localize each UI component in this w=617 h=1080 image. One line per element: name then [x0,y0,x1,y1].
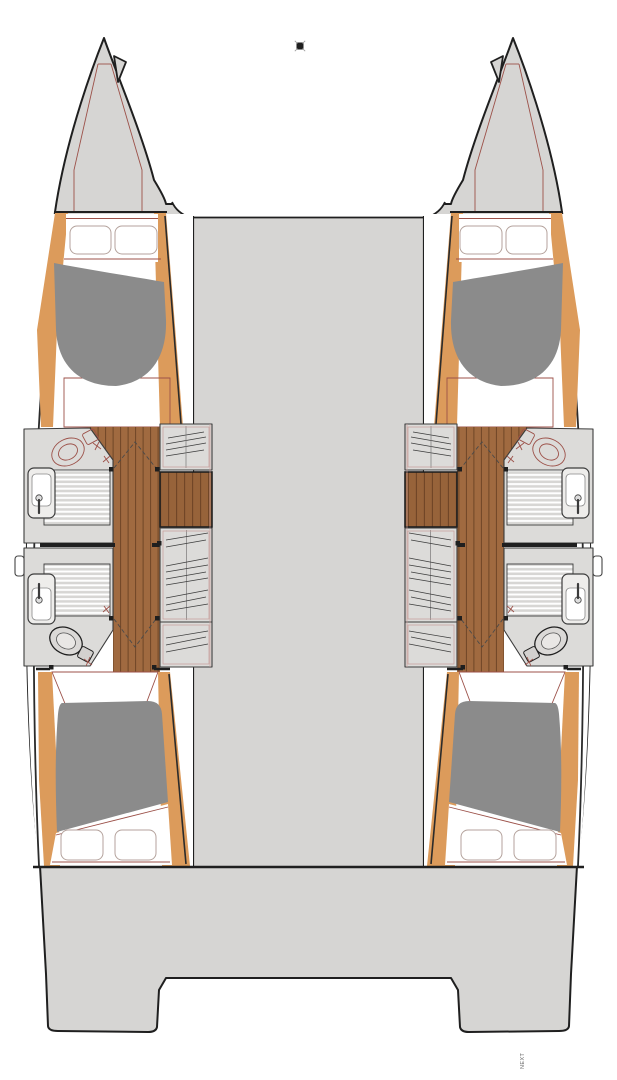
registration-mark-icon [295,41,305,51]
catamaran-floor-plan-page: NEXT [0,0,617,1080]
footer-note: NEXT [520,1052,526,1069]
foredeck-seat-cutout [172,138,445,218]
floor-plan-svg: NEXT [0,0,617,1080]
